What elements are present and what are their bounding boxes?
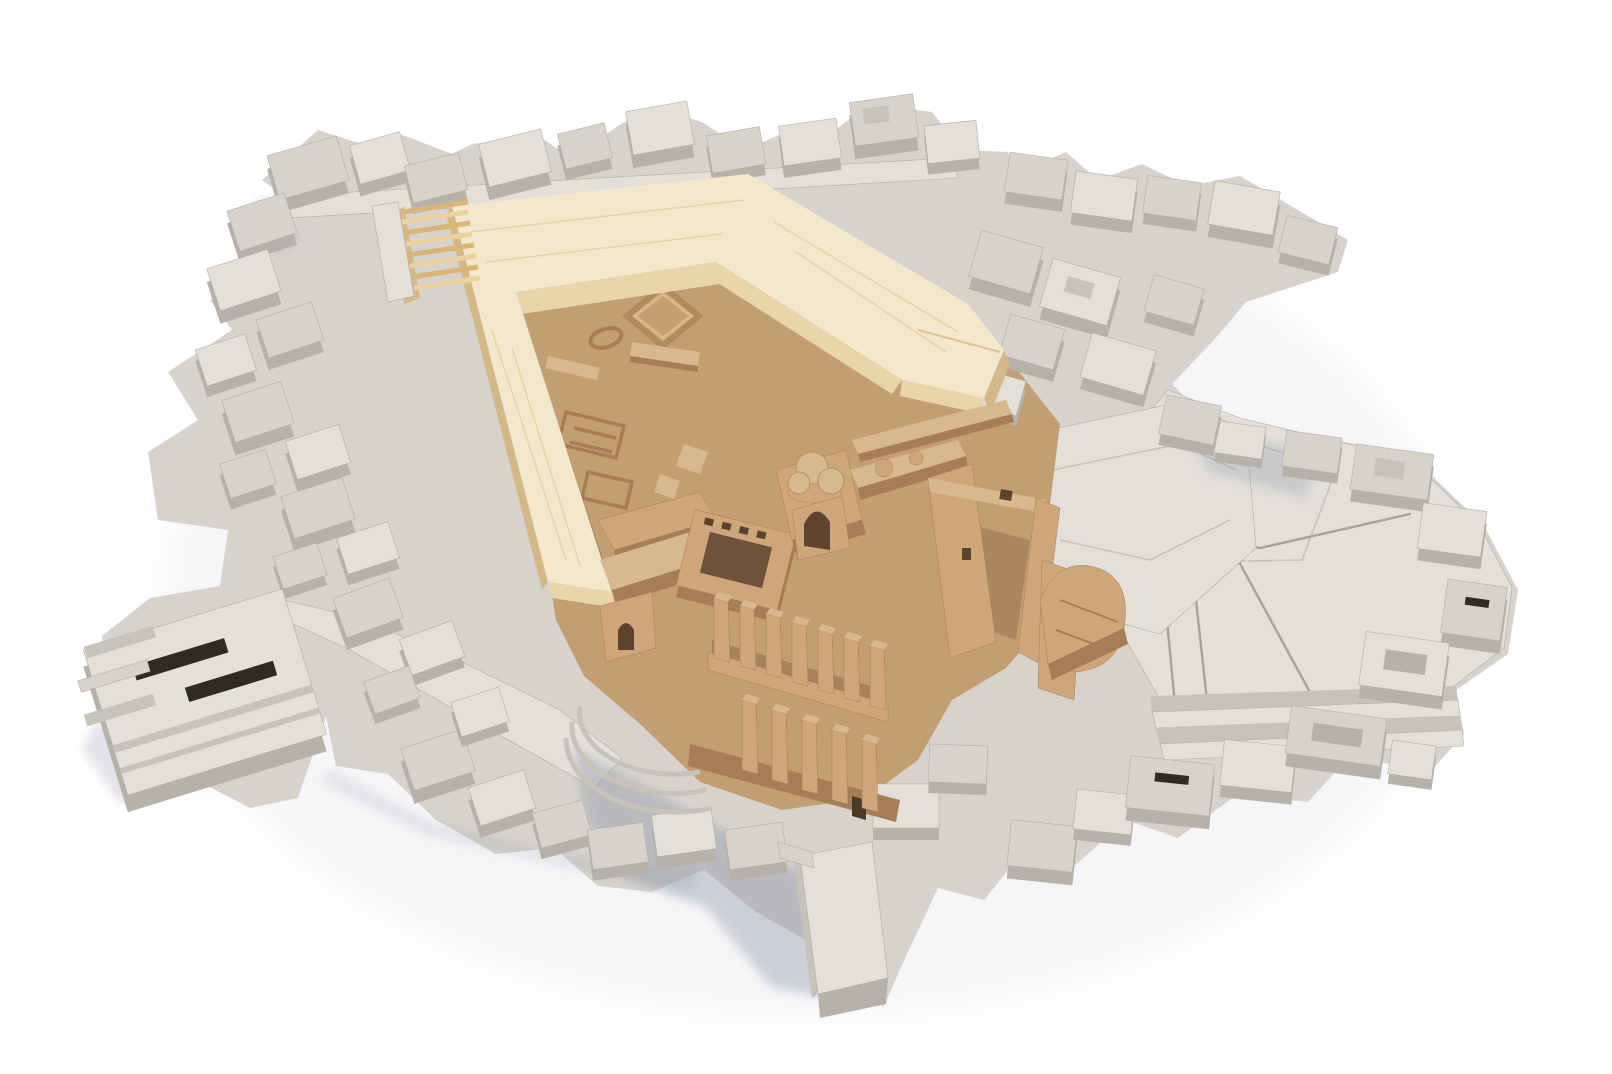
- city-block: [1126, 756, 1215, 829]
- city-block: [626, 101, 695, 168]
- city-block: [778, 118, 841, 178]
- city-block: [1350, 444, 1434, 512]
- city-block: [587, 822, 648, 880]
- city-block: [1282, 430, 1342, 483]
- city-block: [1070, 171, 1137, 233]
- city-block: [1143, 175, 1202, 231]
- city-block: [724, 822, 787, 881]
- city-block: [1441, 579, 1508, 654]
- city-block: [1417, 503, 1487, 569]
- city-block: [1007, 820, 1077, 886]
- city-block: [651, 807, 716, 869]
- city-block: [1214, 421, 1266, 468]
- model-photo-canvas: [0, 0, 1612, 1074]
- city-block: [849, 94, 919, 159]
- city-block: [1220, 739, 1296, 804]
- city-block: [928, 744, 987, 795]
- city-block: [1359, 631, 1450, 709]
- model-photo: [0, 0, 1612, 1074]
- city-block: [1073, 789, 1135, 846]
- city-block: [1388, 740, 1436, 790]
- city-block: [1208, 181, 1281, 249]
- city-block: [924, 120, 980, 174]
- city-block: [1004, 152, 1067, 212]
